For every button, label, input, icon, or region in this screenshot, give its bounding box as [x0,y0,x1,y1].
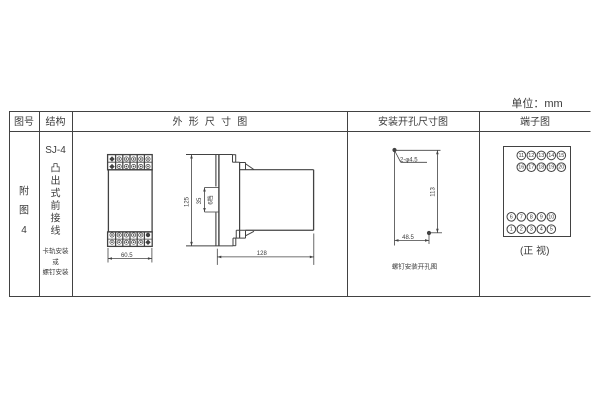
svg-text:(正 视): (正 视) [520,244,549,257]
svg-text:前: 前 [51,199,61,212]
svg-text:结构: 结构 [46,115,66,128]
svg-text:60.5: 60.5 [121,253,133,259]
svg-text:图: 图 [19,205,29,217]
svg-text:式: 式 [51,187,61,200]
svg-text:或: 或 [52,257,59,266]
svg-text:6: 6 [510,214,513,220]
svg-text:18: 18 [538,165,544,171]
svg-text:图号: 图号 [14,116,34,128]
svg-text:9: 9 [540,214,543,220]
svg-text:4: 4 [540,227,543,233]
svg-text:端子图: 端子图 [520,115,550,128]
svg-text:8: 8 [530,214,533,220]
svg-text:螺钉安装开孔图: 螺钉安装开孔图 [392,261,438,270]
svg-text:4: 4 [21,225,27,236]
svg-text:3: 3 [530,227,533,233]
svg-text:2: 2 [520,227,523,233]
svg-text:113: 113 [430,187,436,197]
svg-text:17: 17 [528,165,534,171]
svg-text:卡轨安装: 卡轨安装 [43,246,70,255]
svg-text:外形尺寸图: 外形尺寸图 [173,115,254,128]
svg-text:14: 14 [548,153,554,159]
svg-text:20: 20 [558,165,564,171]
svg-text:19: 19 [548,165,554,171]
svg-text:48.5: 48.5 [402,235,414,241]
svg-text:128: 128 [257,251,268,257]
svg-text:6档: 6档 [207,195,215,204]
svg-text:安装开孔尺寸图: 安装开孔尺寸图 [378,115,448,128]
svg-text:12: 12 [528,153,534,159]
svg-text:11: 11 [518,153,524,159]
svg-text:10: 10 [548,214,554,220]
svg-text:出: 出 [51,174,61,187]
svg-text:2-φ4.5: 2-φ4.5 [400,157,418,163]
svg-text:16: 16 [518,165,524,171]
svg-text:13: 13 [538,153,544,159]
svg-text:15: 15 [558,153,564,159]
svg-text:单位：mm: 单位：mm [511,96,562,110]
svg-text:附: 附 [19,185,29,198]
svg-text:线: 线 [51,224,61,237]
svg-text:35: 35 [197,197,203,204]
svg-text:螺钉安装: 螺钉安装 [43,267,70,276]
svg-text:7: 7 [520,214,523,220]
svg-text:125: 125 [184,196,190,207]
svg-text:1: 1 [510,227,513,233]
svg-text:5: 5 [550,227,553,233]
svg-text:凸: 凸 [51,163,61,175]
svg-text:接: 接 [51,212,61,225]
svg-text:SJ-4: SJ-4 [45,145,66,156]
